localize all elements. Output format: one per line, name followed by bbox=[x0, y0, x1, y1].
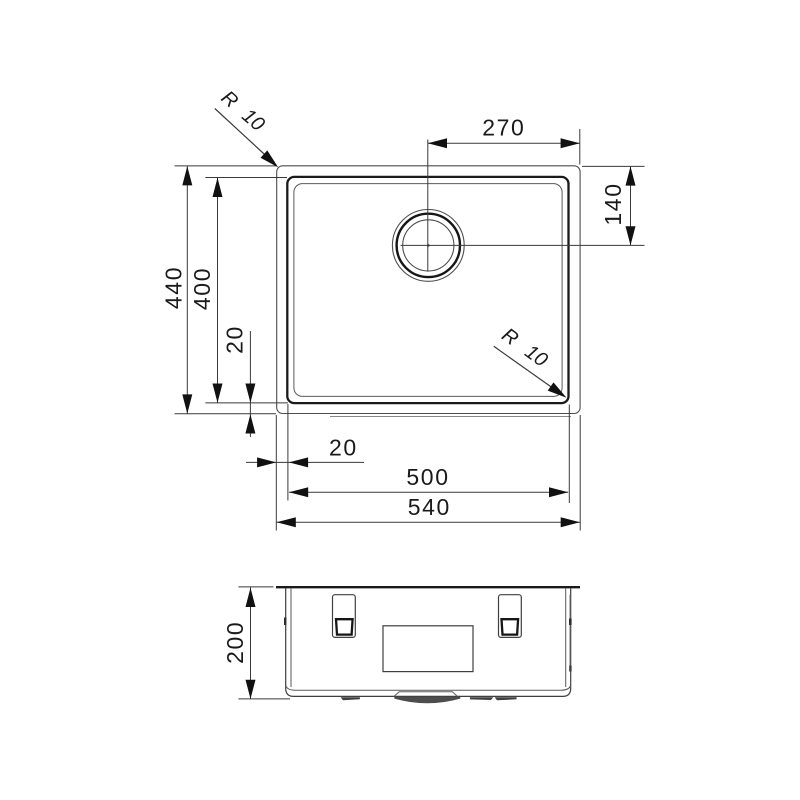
svg-text:140: 140 bbox=[600, 182, 626, 225]
svg-text:540: 540 bbox=[408, 494, 451, 520]
svg-text:270: 270 bbox=[482, 115, 525, 141]
svg-text:500: 500 bbox=[406, 464, 449, 490]
svg-text:440: 440 bbox=[160, 266, 186, 309]
svg-text:20: 20 bbox=[221, 325, 247, 354]
svg-text:20: 20 bbox=[329, 435, 358, 461]
svg-text:400: 400 bbox=[189, 267, 215, 310]
svg-text:200: 200 bbox=[222, 621, 248, 664]
